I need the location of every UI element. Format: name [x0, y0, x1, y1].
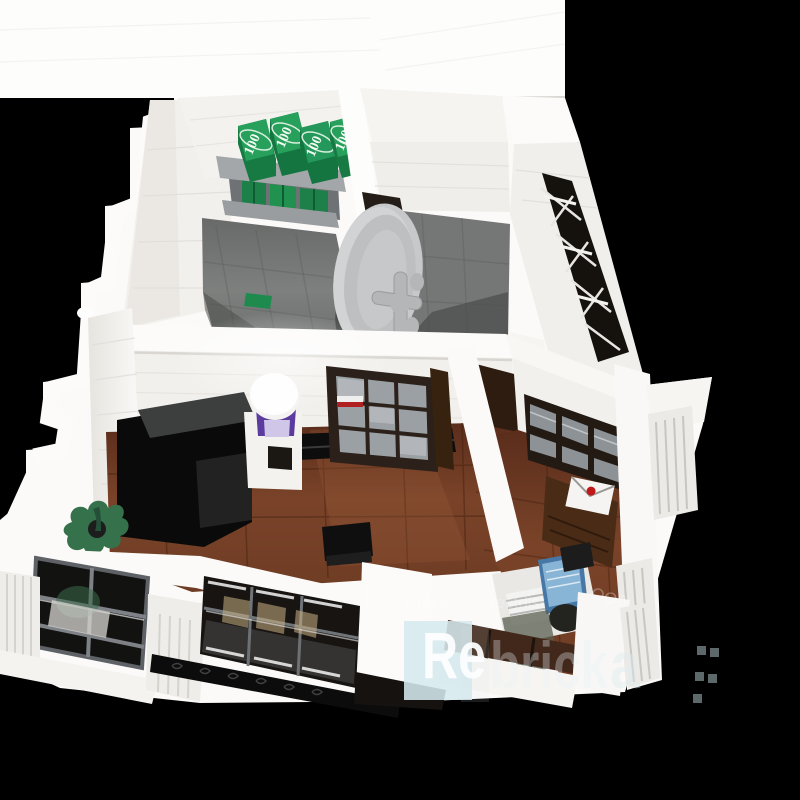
svg-text:Re: Re [422, 618, 486, 692]
svg-text:a: a [610, 628, 641, 702]
svg-text:On: On [604, 589, 627, 608]
svg-text:Only c: Only c [403, 593, 452, 612]
svg-text:restrlist: restrlist [490, 593, 545, 612]
svg-text:brick: brick [490, 628, 608, 702]
